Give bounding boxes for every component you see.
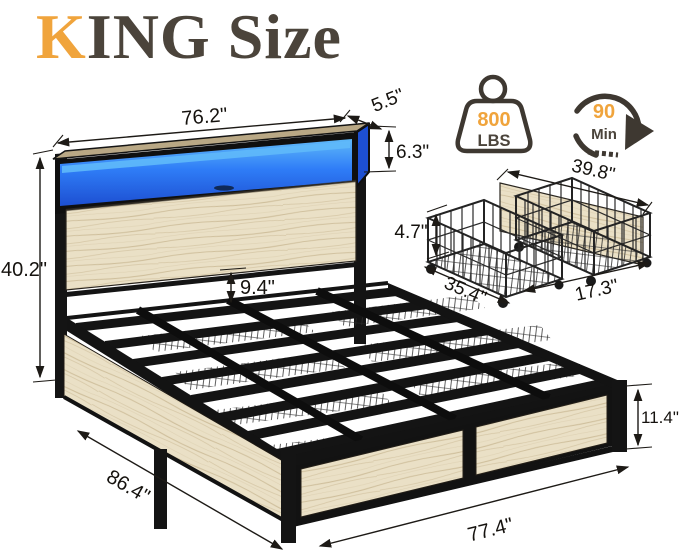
- assembly-time-badge: 90 Min: [576, 93, 654, 155]
- time-unit: Min: [591, 126, 617, 143]
- dim-label: 86.4": [103, 466, 154, 508]
- dim-total-height: 40.2": [1, 150, 56, 382]
- dim-label: 11.4": [641, 408, 679, 427]
- dim-label: 6.3": [396, 142, 429, 163]
- dim-label: 77.4": [466, 514, 516, 546]
- underbed-drawer-diagram: 39.8" 4.7" 35.4" 17.3": [394, 155, 652, 309]
- dim-shelf-height: 6.3": [364, 126, 429, 172]
- title-accent-letter: K: [36, 1, 87, 72]
- weight-kettlebell-icon: [481, 77, 505, 101]
- title: KING Size: [36, 1, 342, 72]
- shelf-right-face: [357, 124, 369, 186]
- weight-capacity-badge: 800 LBS: [458, 77, 531, 151]
- weight-unit: LBS: [478, 132, 511, 150]
- dim-label: 4.7": [394, 222, 427, 243]
- weight-value: 800: [477, 109, 510, 131]
- side-rail-leg: [154, 449, 167, 529]
- dim-label: 9.4": [240, 277, 275, 299]
- title-rest: ING Size: [87, 1, 342, 72]
- charging-port: [214, 185, 234, 190]
- dim-shelf-depth: 5.5": [348, 85, 407, 129]
- footboard-left-post: [281, 452, 296, 543]
- bed-dimension-diagram: KING Size 800 LBS 90 Min 39.8" 4.7": [0, 0, 679, 555]
- dim-label: 17.3": [573, 275, 620, 305]
- footboard-right-post: [612, 380, 627, 452]
- product-dimension-sheet: KING Size 800 LBS 90 Min 39.8" 4.7": [0, 0, 679, 555]
- page-title: KING Size: [36, 1, 342, 72]
- dim-label: 5.5": [369, 85, 408, 117]
- dim-footboard-height: 11.4": [626, 384, 679, 449]
- dim-label: 40.2": [1, 259, 47, 281]
- time-value: 90: [593, 101, 615, 123]
- dim-label: 76.2": [181, 104, 229, 130]
- dim-label: 39.8": [570, 155, 617, 185]
